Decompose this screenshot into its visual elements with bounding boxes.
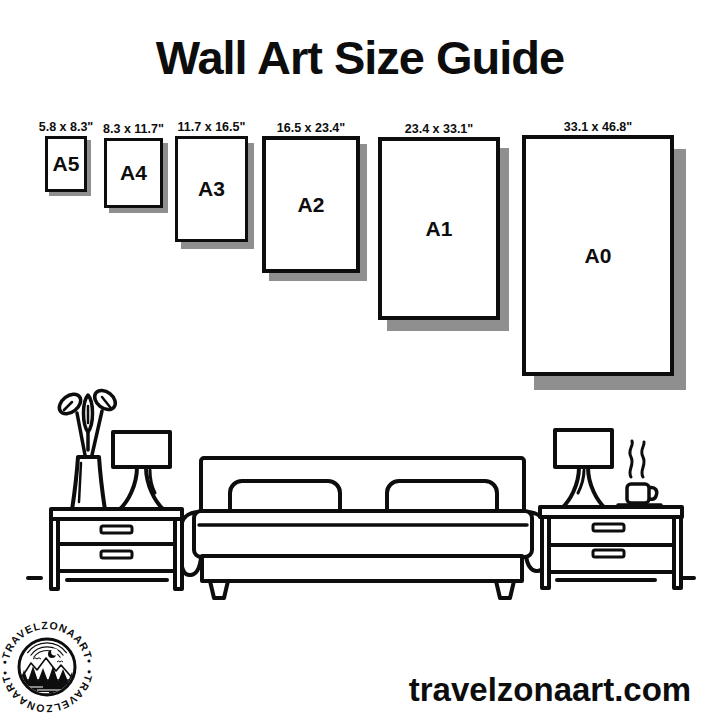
nightstand-left-icon <box>51 509 182 589</box>
steam-icon <box>642 442 645 477</box>
bed-foot-right <box>496 581 514 598</box>
bed-icon <box>181 458 545 598</box>
brand-logo-badge: •TRAVELZONAART• •TRAVELZONAART• <box>0 614 97 714</box>
wall-art-size-guide: Wall Art Size Guide 5.8 x 8.3" A5 8.3 x … <box>0 0 720 720</box>
table-lamp-right-icon <box>555 430 612 509</box>
coffee-cup-icon <box>618 441 661 505</box>
bedroom-illustration <box>0 0 720 720</box>
nightstand-right-icon <box>540 507 682 588</box>
website-url: travelzonaart.com <box>390 671 710 709</box>
steam-icon <box>630 441 633 477</box>
table-lamp-left-icon <box>113 432 170 510</box>
bed-foot-left <box>210 581 228 598</box>
plant-vase-icon <box>56 387 119 510</box>
